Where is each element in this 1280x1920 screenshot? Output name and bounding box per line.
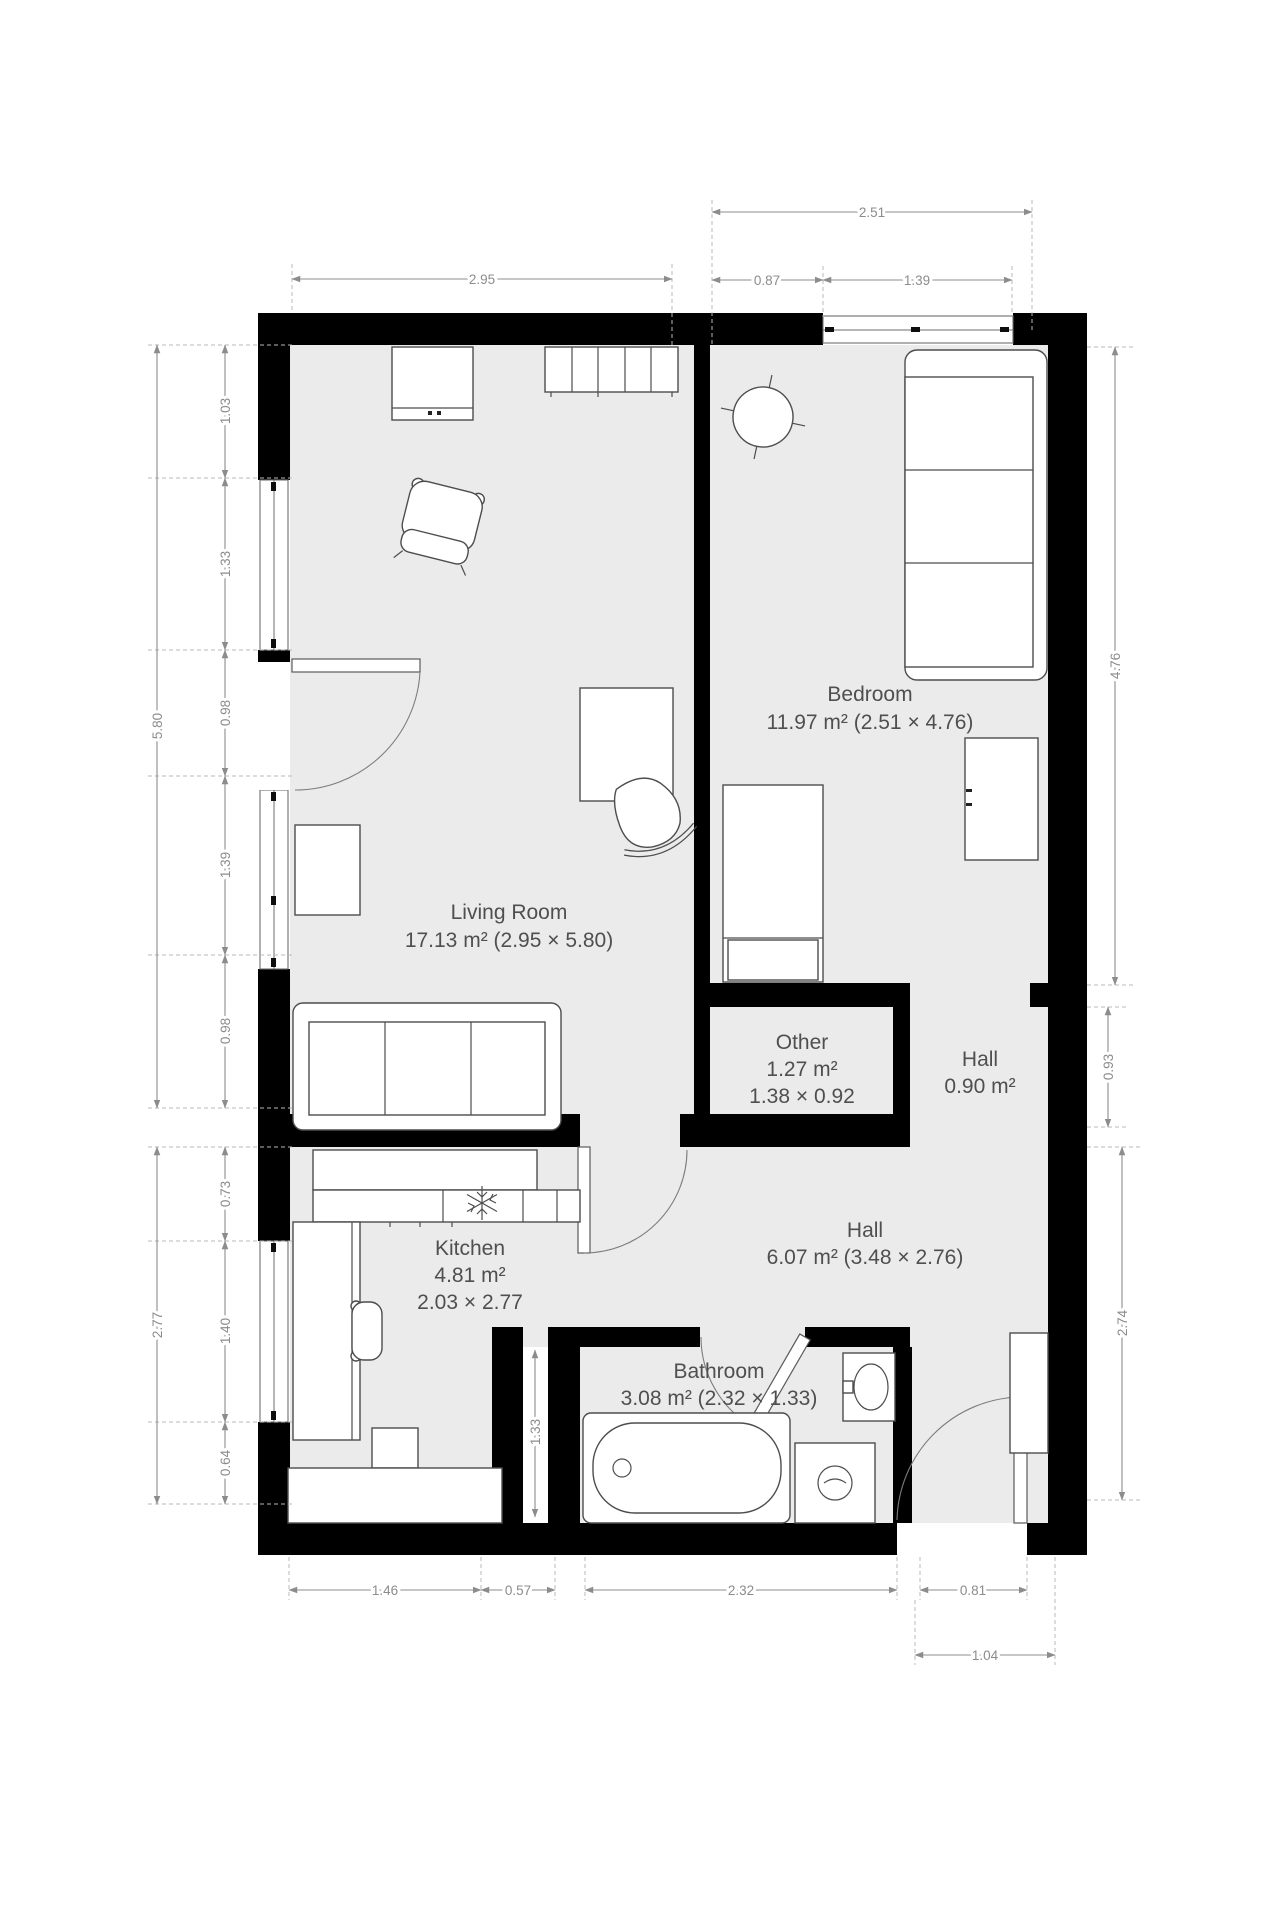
dim-left-total-upper: 5.80	[150, 713, 165, 739]
kitchen-name: Kitchen	[435, 1237, 505, 1260]
bathroom-name: Bathroom	[673, 1360, 764, 1383]
dim-bottom-seg3: 2.32	[728, 1583, 754, 1598]
living-cabinet	[392, 347, 473, 420]
dim-bathroom-width: 1.33	[528, 1419, 543, 1445]
bedroom-daybed	[905, 350, 1047, 680]
floor-plan-drawing: 2.51 2.95 0.87 1.39 5.80 1.03 1.33 0.98 …	[0, 0, 1280, 1920]
bathtub	[583, 1413, 790, 1523]
dim-left-seg3: 0.98	[218, 700, 233, 726]
living-room-area: 17.13 m² (2.95 × 5.80)	[405, 929, 613, 952]
other-room-area: 1.27 m²	[766, 1058, 837, 1081]
dim-right-hall: 2.74	[1115, 1309, 1130, 1336]
hall-wardrobe	[1010, 1333, 1048, 1453]
dim-right-bedroom: 4.76	[1108, 653, 1123, 679]
living-sofa	[293, 1003, 561, 1130]
kitchen-area: 4.81 m²	[434, 1264, 505, 1287]
living-shelving	[545, 347, 678, 397]
hall-small-area: 0.90 m²	[944, 1075, 1015, 1098]
bedroom-bed	[723, 785, 823, 982]
living-room-name: Living Room	[451, 901, 568, 924]
dim-bottom-entry: 1.04	[972, 1648, 999, 1663]
dim-right-hall-small: 0.93	[1101, 1054, 1116, 1080]
bedroom-area: 11.97 m² (2.51 × 4.76)	[767, 711, 974, 734]
hall-name: Hall	[847, 1219, 883, 1242]
dim-top-seg2: 1.39	[904, 273, 930, 288]
dim-top-total: 2.51	[859, 205, 885, 220]
other-room-name: Other	[776, 1031, 829, 1054]
bedroom-dresser	[965, 738, 1038, 860]
hall-area: 6.07 m² (3.48 × 2.76)	[767, 1246, 964, 1269]
dim-top-seg1: 0.87	[754, 273, 780, 288]
dim-top-living: 2.95	[469, 272, 495, 287]
bathroom-sink	[843, 1353, 895, 1421]
washing-machine	[795, 1443, 875, 1523]
dim-left-seg8: 0.64	[218, 1449, 233, 1476]
dim-left-seg2: 1.33	[218, 551, 233, 577]
dim-bottom-seg2: 0.57	[505, 1583, 531, 1598]
dim-left-seg1: 1.03	[218, 398, 233, 424]
floor-plan-page: 2.51 2.95 0.87 1.39 5.80 1.03 1.33 0.98 …	[0, 0, 1280, 1920]
kitchen-chair	[351, 1301, 382, 1361]
hall-small-name: Hall	[962, 1048, 998, 1071]
window-kitchen-left	[260, 1241, 288, 1422]
dim-left-total-lower: 2.77	[150, 1312, 165, 1338]
window-bedroom-top	[823, 316, 1013, 343]
dim-bottom-seg4: 0.81	[960, 1583, 986, 1598]
dim-bottom-seg1: 1.46	[372, 1583, 398, 1598]
dim-left-seg5: 0.98	[218, 1018, 233, 1044]
kitchen-side-counter	[293, 1222, 360, 1440]
window-living-left-2	[260, 790, 288, 969]
bathroom-area: 3.08 m² (2.32 × 1.33)	[621, 1387, 818, 1410]
dim-left-seg6: 0.73	[218, 1181, 233, 1207]
dim-left-seg7: 1.40	[218, 1318, 233, 1344]
window-living-left-1	[260, 480, 288, 650]
living-side-table	[295, 825, 360, 915]
bedroom-name: Bedroom	[827, 683, 912, 706]
other-room-size: 1.38 × 0.92	[749, 1085, 855, 1108]
kitchen-size: 2.03 × 2.77	[417, 1291, 523, 1314]
dim-left-seg4: 1.39	[218, 852, 233, 878]
